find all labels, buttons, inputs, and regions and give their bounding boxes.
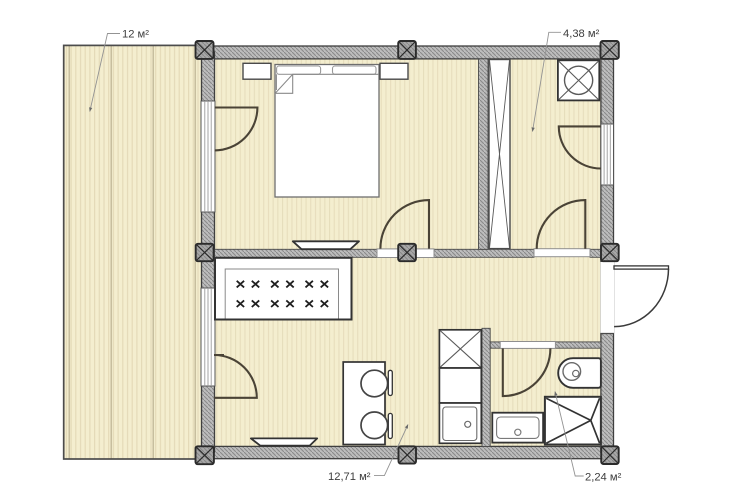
svg-text:2,24 м²: 2,24 м² <box>585 472 622 484</box>
svg-text:12,71 м²: 12,71 м² <box>328 471 371 483</box>
svg-text:12 м²: 12 м² <box>122 29 149 41</box>
svg-text:4,38 м²: 4,38 м² <box>563 28 600 40</box>
